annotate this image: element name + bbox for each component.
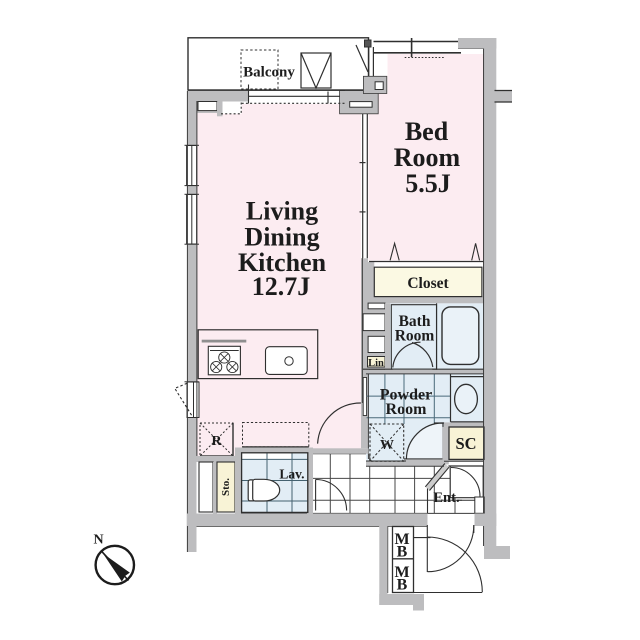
svg-text:R: R xyxy=(211,434,222,449)
svg-text:B: B xyxy=(397,544,408,561)
svg-text:12.7J: 12.7J xyxy=(252,272,311,301)
svg-text:Room: Room xyxy=(395,328,435,345)
svg-text:Living: Living xyxy=(246,197,318,226)
svg-text:5.5J: 5.5J xyxy=(405,169,451,198)
svg-text:Room: Room xyxy=(386,401,428,418)
svg-text:Lin: Lin xyxy=(368,358,384,369)
svg-text:Bed: Bed xyxy=(405,117,449,146)
svg-text:B: B xyxy=(397,577,408,594)
svg-text:N: N xyxy=(94,533,104,548)
svg-text:Room: Room xyxy=(394,143,461,172)
svg-text:Sto.: Sto. xyxy=(220,478,232,496)
svg-text:Ent.: Ent. xyxy=(433,490,459,506)
svg-text:SC: SC xyxy=(455,434,476,453)
svg-text:Closet: Closet xyxy=(407,275,449,292)
svg-text:Lav.: Lav. xyxy=(279,467,304,482)
svg-text:Balcony: Balcony xyxy=(243,65,295,81)
svg-text:W: W xyxy=(380,438,394,453)
